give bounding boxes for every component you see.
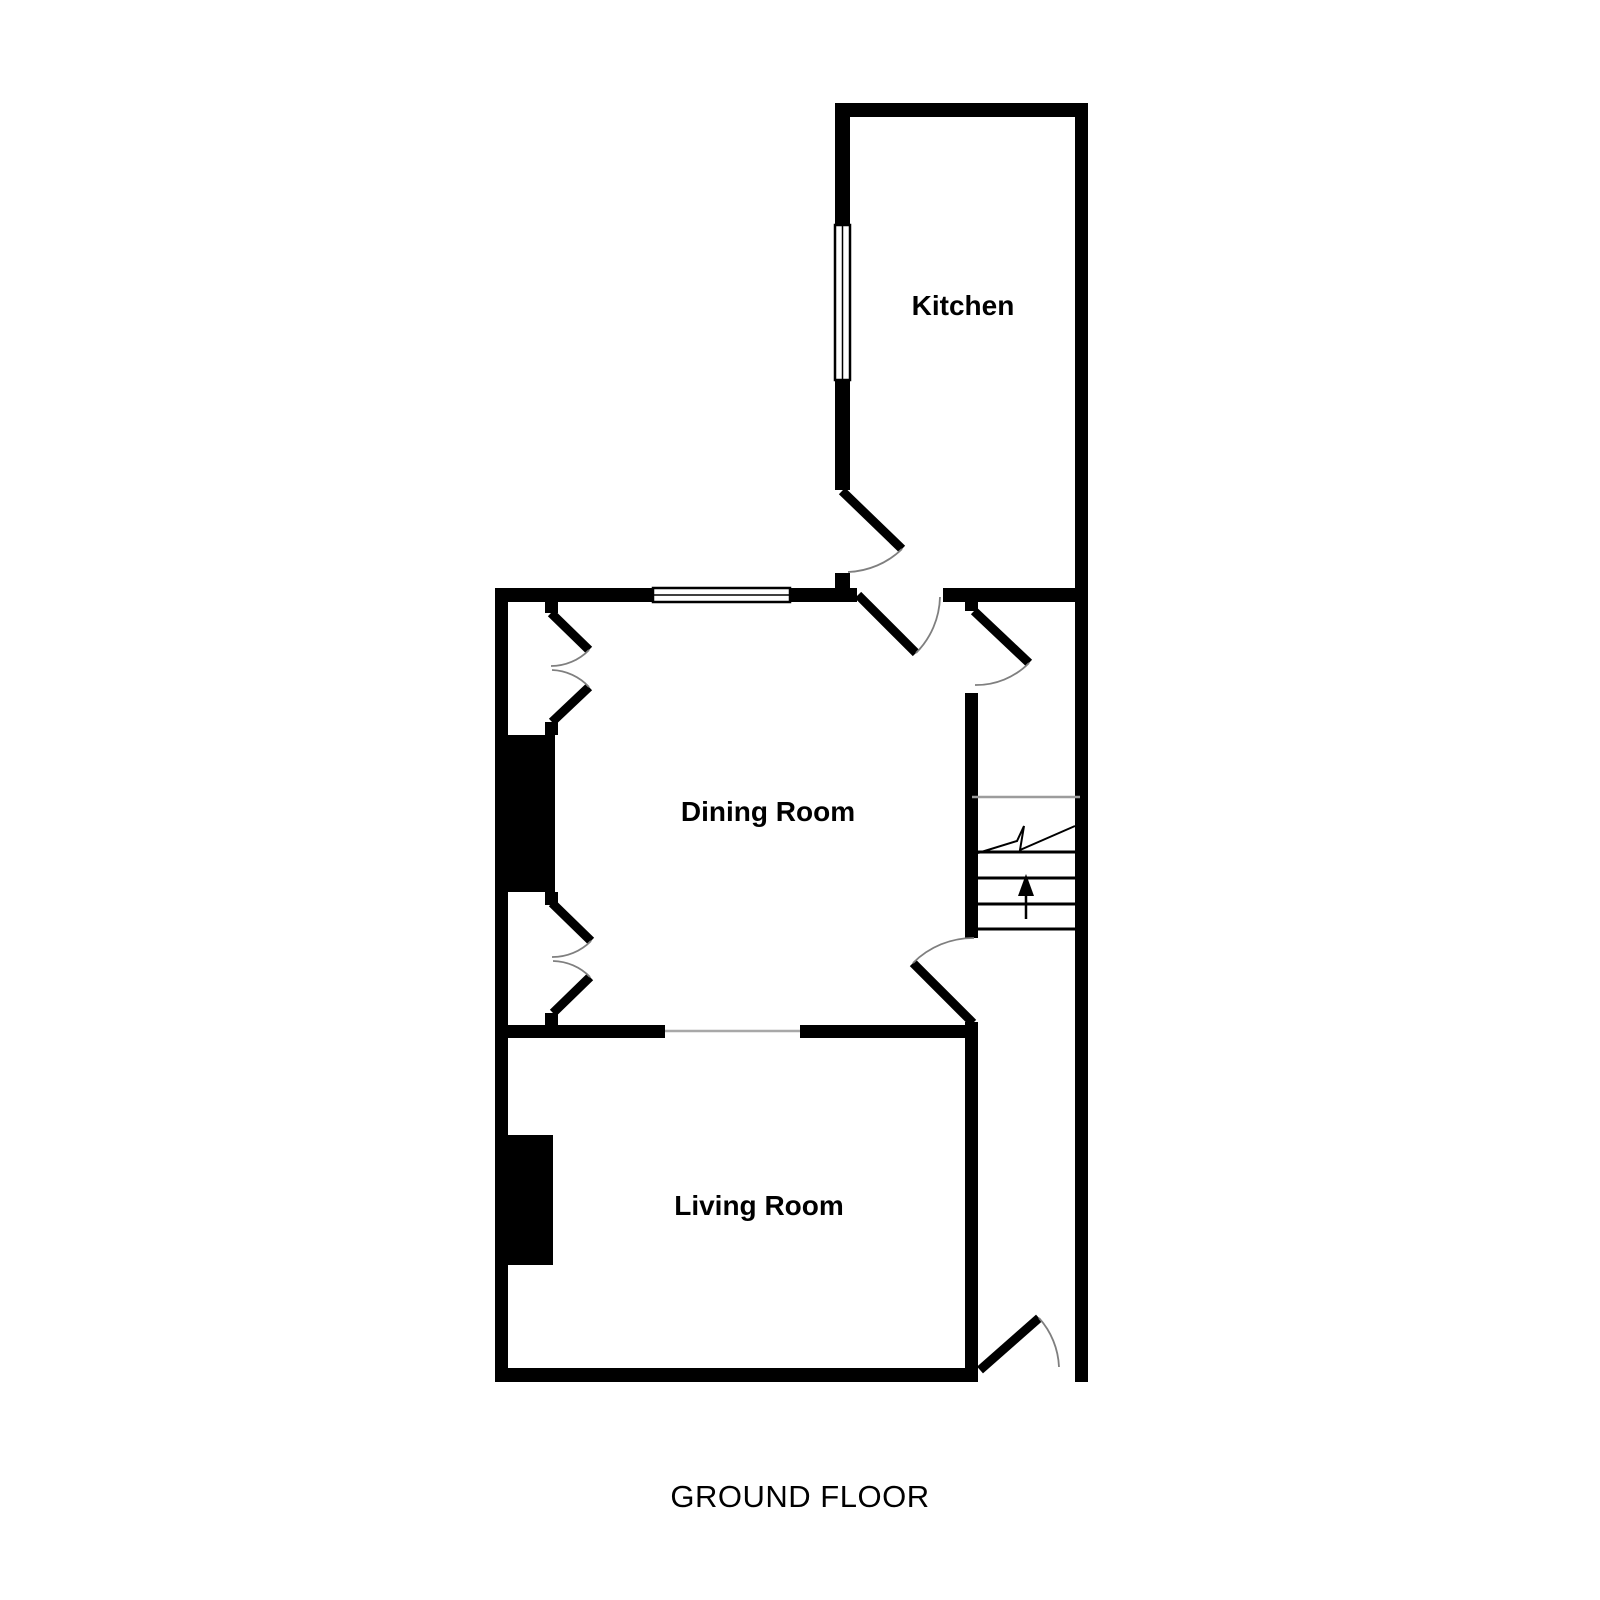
wall-dining-north-c xyxy=(943,588,1075,602)
wall-divider-b xyxy=(800,1025,978,1038)
room-label-kitchen: Kitchen xyxy=(912,290,1015,321)
wall-front xyxy=(495,1368,978,1382)
wall-dining-north-b xyxy=(790,588,857,602)
wall-living-east xyxy=(965,1022,978,1382)
floor-plan: Kitchen Dining Room Living Room GROUND F… xyxy=(0,0,1600,1600)
floor-title: GROUND FLOOR xyxy=(670,1479,929,1514)
wall-kitchen-top xyxy=(835,103,1088,117)
wall-kitchen-west-lower xyxy=(835,380,850,490)
room-label-living: Living Room xyxy=(674,1190,844,1221)
chimney-breast-dining xyxy=(495,735,555,892)
chimney-breast-living xyxy=(495,1135,553,1265)
window-icon-kitchen xyxy=(835,225,850,380)
wall-dining-north-a xyxy=(495,588,653,602)
window-icon-dining xyxy=(653,588,790,602)
wall-stairs-west xyxy=(965,693,978,938)
wall-house-right xyxy=(1075,103,1088,1382)
wall-kitchen-west-upper xyxy=(835,117,850,225)
jamb-alcove-north-top xyxy=(545,601,558,613)
floor-plan-page: Kitchen Dining Room Living Room GROUND F… xyxy=(0,0,1600,1600)
wall-divider-a xyxy=(495,1025,665,1038)
room-label-dining: Dining Room xyxy=(681,796,855,827)
